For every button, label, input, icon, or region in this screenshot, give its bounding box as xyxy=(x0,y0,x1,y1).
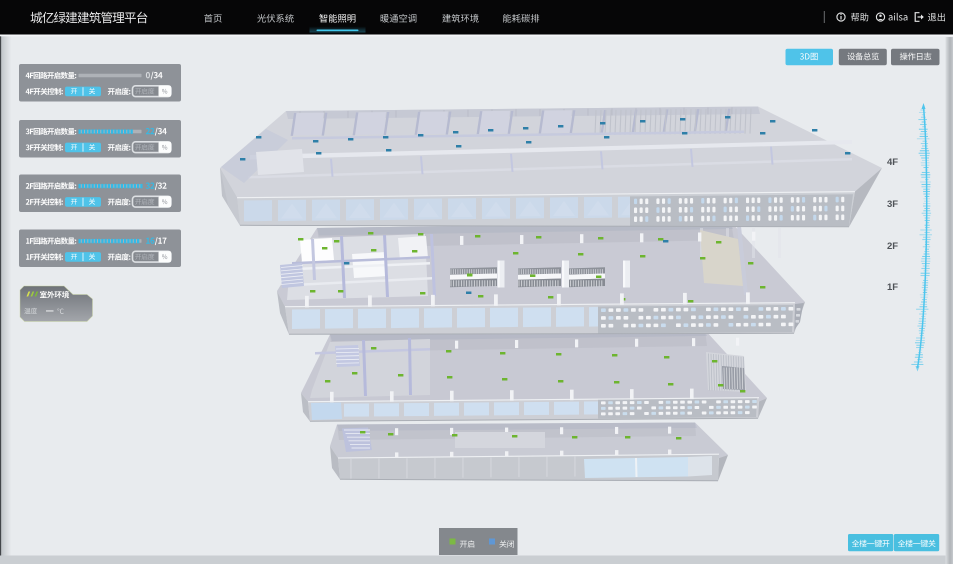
svg-text:3F: 3F xyxy=(887,199,898,210)
svg-text:4F: 4F xyxy=(887,157,898,168)
svg-text:1F: 1F xyxy=(887,282,898,293)
svg-text:2F: 2F xyxy=(887,241,898,252)
